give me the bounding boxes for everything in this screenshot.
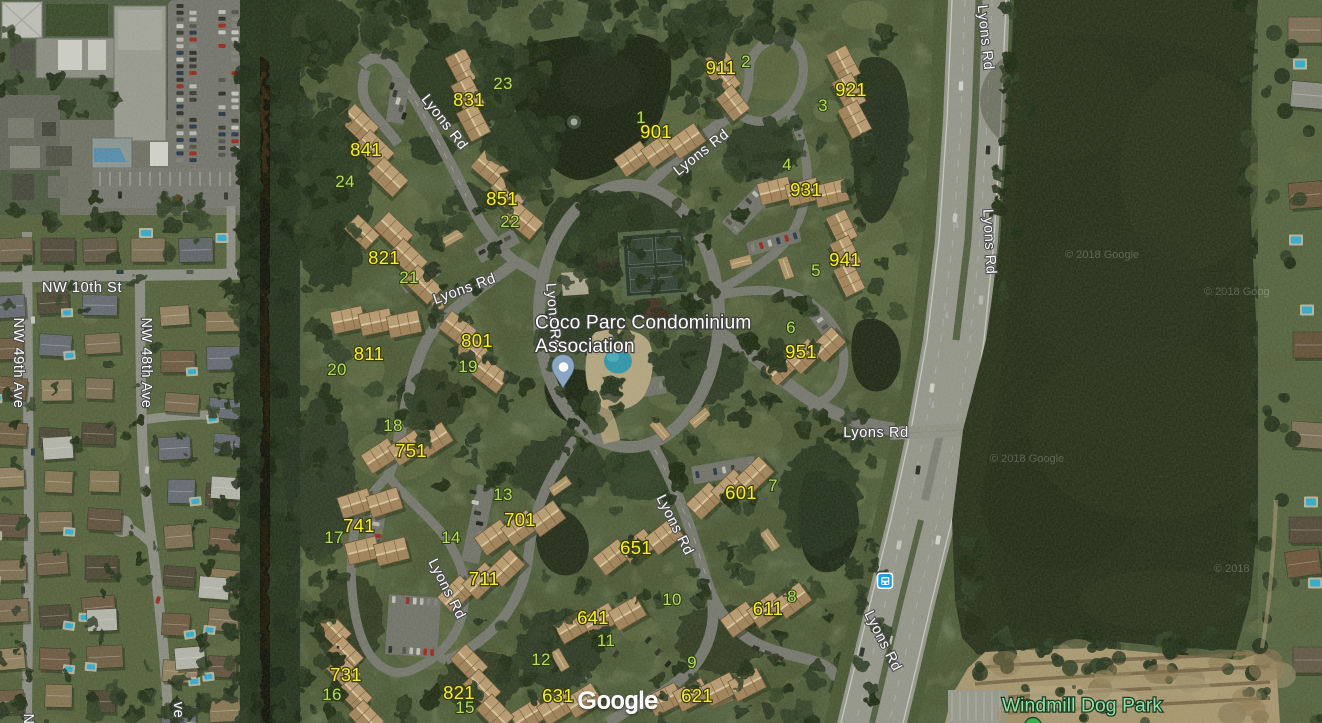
svg-text:Windmill Dog Park: Windmill Dog Park	[1002, 696, 1163, 717]
svg-text:601: 601	[725, 482, 757, 503]
svg-text:951: 951	[785, 341, 817, 362]
svg-text:11: 11	[597, 631, 615, 650]
svg-text:6: 6	[786, 318, 796, 337]
svg-text:8: 8	[787, 587, 797, 606]
svg-text:801: 801	[461, 330, 493, 351]
svg-text:14: 14	[441, 528, 461, 547]
svg-text:Coco Parc Condominium: Coco Parc Condominium	[535, 313, 751, 334]
svg-text:711: 711	[469, 568, 499, 589]
svg-text:NW 10th St: NW 10th St	[42, 280, 122, 296]
svg-text:10: 10	[662, 590, 682, 609]
svg-text:N: N	[20, 713, 36, 723]
svg-text:1: 1	[636, 108, 646, 127]
svg-text:831: 831	[453, 89, 485, 110]
svg-text:841: 841	[350, 139, 382, 160]
svg-text:731: 731	[330, 664, 362, 685]
svg-text:Google: Google	[578, 688, 659, 715]
svg-text:631: 631	[542, 685, 574, 706]
svg-text:Association: Association	[535, 336, 635, 357]
svg-text:851: 851	[486, 188, 518, 209]
svg-text:811: 811	[354, 343, 384, 364]
svg-text:ve: ve	[170, 702, 186, 719]
svg-text:17: 17	[324, 528, 344, 547]
svg-text:15: 15	[455, 698, 475, 717]
svg-text:9: 9	[687, 653, 697, 672]
svg-text:20: 20	[327, 360, 347, 379]
svg-text:701: 701	[504, 509, 536, 530]
svg-text:921: 921	[835, 79, 867, 100]
svg-text:12: 12	[531, 650, 551, 669]
svg-text:© 2018 Goog: © 2018 Goog	[1204, 286, 1270, 298]
svg-text:13: 13	[493, 485, 513, 504]
svg-text:© 2018 Google: © 2018 Google	[1065, 249, 1139, 261]
svg-text:© 2018: © 2018	[1214, 563, 1250, 575]
svg-text:821: 821	[368, 247, 400, 268]
svg-text:Lyons Rd: Lyons Rd	[979, 209, 998, 275]
svg-text:21: 21	[399, 268, 419, 287]
svg-text:751: 751	[395, 440, 427, 461]
svg-text:5: 5	[811, 261, 821, 280]
svg-text:22: 22	[500, 212, 520, 231]
svg-text:611: 611	[753, 598, 783, 619]
svg-text:741: 741	[343, 515, 375, 536]
svg-text:16: 16	[322, 685, 342, 704]
svg-text:18: 18	[383, 416, 403, 435]
svg-text:621: 621	[681, 685, 713, 706]
svg-text:24: 24	[335, 172, 355, 191]
svg-text:4: 4	[782, 155, 792, 174]
svg-text:2: 2	[741, 52, 751, 71]
svg-text:7: 7	[768, 476, 778, 495]
svg-text:NW 48th Ave: NW 48th Ave	[138, 318, 154, 409]
svg-text:19: 19	[458, 357, 478, 376]
svg-text:641: 641	[577, 607, 609, 628]
svg-text:Lyons Rd: Lyons Rd	[843, 425, 909, 441]
svg-text:651: 651	[620, 537, 652, 558]
svg-text:931: 931	[790, 179, 822, 200]
svg-text:NW 49th Ave: NW 49th Ave	[10, 318, 26, 409]
svg-text:23: 23	[493, 74, 513, 93]
svg-text:3: 3	[818, 96, 828, 115]
svg-text:911: 911	[706, 57, 736, 78]
svg-text:941: 941	[829, 249, 861, 270]
svg-text:© 2018 Google: © 2018 Google	[990, 453, 1064, 465]
